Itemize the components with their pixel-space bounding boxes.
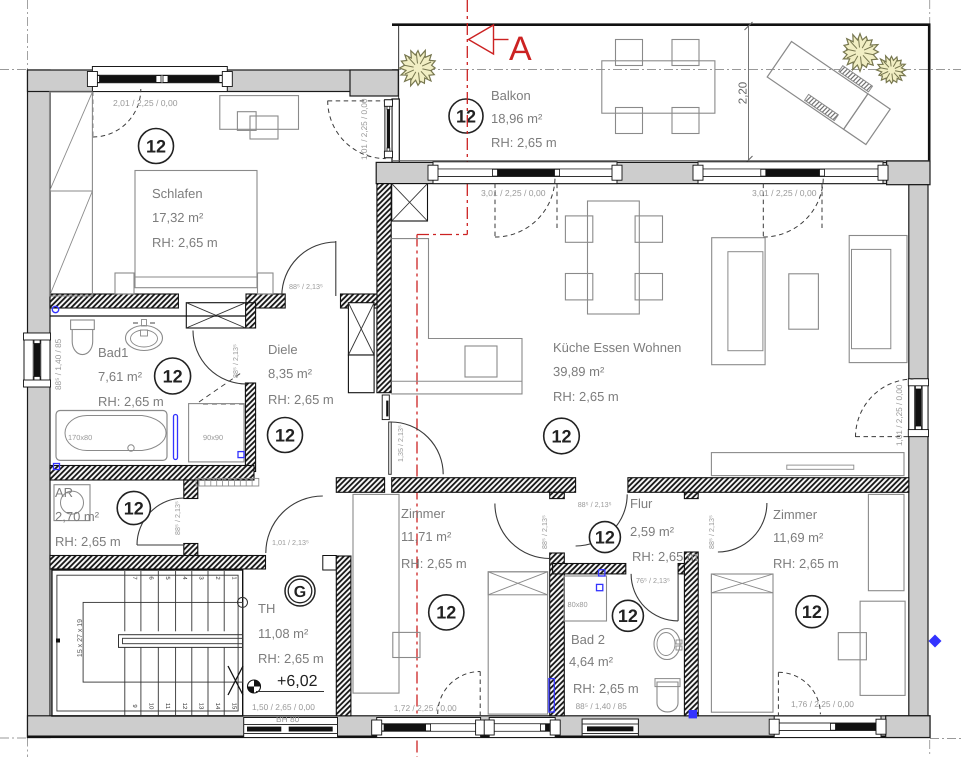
svg-text:15 x 27 x 19: 15 x 27 x 19 bbox=[77, 619, 84, 657]
svg-text:1,01 / 2,13⁵: 1,01 / 2,13⁵ bbox=[272, 538, 309, 547]
svg-text:2,20: 2,20 bbox=[738, 82, 750, 104]
svg-text:3,01 / 2,25 / 0,00: 3,01 / 2,25 / 0,00 bbox=[481, 188, 546, 198]
svg-text:14: 14 bbox=[214, 703, 221, 710]
svg-text:TH: TH bbox=[258, 601, 275, 616]
svg-text:11: 11 bbox=[164, 703, 171, 710]
svg-text:Bad 2: Bad 2 bbox=[571, 632, 605, 647]
svg-text:2,01 / 2,25 / 0,00: 2,01 / 2,25 / 0,00 bbox=[113, 98, 178, 108]
svg-text:RH: 2,65 m: RH: 2,65 m bbox=[632, 549, 698, 564]
svg-text:4,64 m²: 4,64 m² bbox=[569, 654, 614, 669]
svg-text:11,71 m²: 11,71 m² bbox=[401, 529, 452, 544]
svg-text:76⁵ / 2,13⁵: 76⁵ / 2,13⁵ bbox=[636, 576, 670, 585]
svg-text:12: 12 bbox=[163, 366, 183, 386]
svg-text:88⁵ / 1,40 / 85: 88⁵ / 1,40 / 85 bbox=[576, 702, 628, 711]
svg-text:17,32 m²: 17,32 m² bbox=[152, 210, 204, 225]
svg-text:2,70 m²: 2,70 m² bbox=[55, 509, 100, 524]
svg-text:12: 12 bbox=[456, 106, 476, 126]
svg-text:Zimmer: Zimmer bbox=[773, 507, 818, 522]
svg-text:Bad1: Bad1 bbox=[98, 345, 128, 360]
svg-text:RH: 2,65 m: RH: 2,65 m bbox=[553, 389, 619, 404]
svg-text:1,72 / 2,25 / 0,00: 1,72 / 2,25 / 0,00 bbox=[394, 703, 457, 713]
svg-text:RH: 2,65 m: RH: 2,65 m bbox=[401, 556, 467, 571]
svg-text:10: 10 bbox=[148, 703, 155, 710]
svg-text:12: 12 bbox=[595, 527, 615, 547]
svg-text:BH 80: BH 80 bbox=[276, 714, 300, 724]
svg-text:15: 15 bbox=[231, 703, 238, 710]
svg-text:13: 13 bbox=[197, 703, 204, 710]
svg-text:1,35 / 2,13⁵: 1,35 / 2,13⁵ bbox=[396, 425, 405, 462]
svg-text:1,76 / 2,25 / 0,00: 1,76 / 2,25 / 0,00 bbox=[791, 699, 854, 709]
svg-text:Balkon: Balkon bbox=[491, 88, 531, 103]
svg-text:RH: 2,65 m: RH: 2,65 m bbox=[573, 681, 639, 696]
svg-text:90x90: 90x90 bbox=[203, 433, 223, 442]
svg-text:88⁵ / 2,13⁵: 88⁵ / 2,13⁵ bbox=[231, 344, 240, 378]
svg-text:RH: 2,65 m: RH: 2,65 m bbox=[268, 392, 334, 407]
svg-text:RH: 2,65 m: RH: 2,65 m bbox=[152, 235, 218, 250]
svg-text:1,50 / 2,65 / 0,00: 1,50 / 2,65 / 0,00 bbox=[252, 702, 315, 712]
svg-text:12: 12 bbox=[618, 606, 638, 626]
svg-text:12: 12 bbox=[146, 136, 166, 156]
svg-text:88⁵ / 2,13⁵: 88⁵ / 2,13⁵ bbox=[173, 501, 182, 535]
svg-text:Zimmer: Zimmer bbox=[401, 506, 446, 521]
svg-text:G: G bbox=[294, 584, 306, 601]
svg-text:Diele: Diele bbox=[268, 342, 298, 357]
svg-text:+6,02: +6,02 bbox=[277, 673, 318, 690]
svg-text:RH: 2,65 m: RH: 2,65 m bbox=[491, 135, 557, 150]
svg-text:1,01 / 2,25 / 0,00: 1,01 / 2,25 / 0,00 bbox=[895, 384, 904, 446]
svg-text:1,01 / 2,25 / 0,00: 1,01 / 2,25 / 0,00 bbox=[360, 98, 369, 160]
svg-text:12: 12 bbox=[124, 498, 144, 518]
svg-text:3,01 / 2,25 / 0,00: 3,01 / 2,25 / 0,00 bbox=[752, 188, 817, 198]
svg-text:Flur: Flur bbox=[630, 496, 653, 511]
svg-text:18,96 m²: 18,96 m² bbox=[491, 111, 543, 126]
svg-text:12: 12 bbox=[275, 425, 295, 445]
svg-text:11,69 m²: 11,69 m² bbox=[773, 530, 824, 545]
svg-text:12: 12 bbox=[436, 603, 456, 623]
svg-text:88⁵ / 2,13⁵: 88⁵ / 2,13⁵ bbox=[578, 500, 612, 509]
svg-text:RH: 2,65 m: RH: 2,65 m bbox=[773, 556, 839, 571]
svg-text:8,35 m²: 8,35 m² bbox=[268, 366, 313, 381]
svg-text:AR: AR bbox=[55, 485, 73, 500]
svg-text:11,08 m²: 11,08 m² bbox=[258, 626, 309, 641]
svg-text:88⁵ / 1,40 / 85: 88⁵ / 1,40 / 85 bbox=[54, 338, 63, 390]
svg-text:Küche Essen Wohnen: Küche Essen Wohnen bbox=[553, 340, 681, 355]
svg-text:RH: 2,65 m: RH: 2,65 m bbox=[55, 534, 121, 549]
svg-text:170x80: 170x80 bbox=[68, 433, 92, 442]
svg-text:88⁵ / 2,13⁵: 88⁵ / 2,13⁵ bbox=[540, 515, 549, 549]
svg-text:7,61 m²: 7,61 m² bbox=[98, 369, 143, 384]
svg-text:A: A bbox=[509, 30, 532, 68]
svg-text:RH: 2,65 m: RH: 2,65 m bbox=[98, 394, 164, 409]
svg-text:2,59 m²: 2,59 m² bbox=[630, 524, 675, 539]
svg-text:Schlafen: Schlafen bbox=[152, 186, 203, 201]
svg-text:88⁵ / 2,13⁵: 88⁵ / 2,13⁵ bbox=[289, 282, 323, 291]
svg-text:12: 12 bbox=[551, 426, 571, 446]
svg-text:39,89 m²: 39,89 m² bbox=[553, 364, 605, 379]
svg-text:12: 12 bbox=[802, 602, 822, 622]
svg-text:80x80: 80x80 bbox=[568, 600, 588, 609]
svg-text:88⁵ / 2,13⁵: 88⁵ / 2,13⁵ bbox=[707, 515, 716, 549]
svg-text:12: 12 bbox=[181, 703, 188, 710]
svg-text:RH: 2,65 m: RH: 2,65 m bbox=[258, 651, 324, 666]
